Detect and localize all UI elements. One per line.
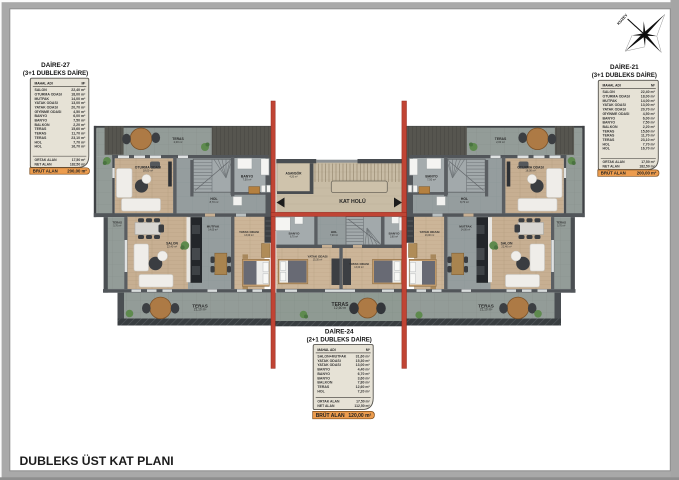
svg-text:7,20 m²: 7,20 m² (358, 389, 371, 393)
svg-text:17,50 m²: 17,50 m² (356, 399, 370, 403)
svg-text:7,20 m²: 7,20 m² (330, 234, 338, 237)
svg-text:MAHAL ADI: MAHAL ADI (317, 348, 335, 352)
svg-text:3,60 m²: 3,60 m² (390, 236, 398, 239)
svg-text:ORTAK ALAN: ORTAK ALAN (317, 399, 340, 403)
svg-text:TERAS: TERAS (35, 136, 48, 140)
svg-text:YATAK ODASI: YATAK ODASI (35, 101, 58, 105)
svg-text:182,50 m²: 182,50 m² (70, 162, 86, 166)
svg-text:GİYİNME ODASI: GİYİNME ODASI (35, 110, 62, 114)
svg-text:BANYO: BANYO (35, 119, 48, 123)
svg-text:14,00 m²: 14,00 m² (461, 229, 471, 232)
svg-text:(3+1 DUBLEKS DAİRE): (3+1 DUBLEKS DAİRE) (592, 72, 657, 79)
svg-text:2,00 m²: 2,00 m² (174, 140, 183, 144)
svg-text:13,00 m²: 13,00 m² (71, 101, 86, 105)
svg-text:TERAS: TERAS (603, 129, 616, 133)
svg-text:18,00 m²: 18,00 m² (143, 169, 153, 173)
svg-text:DUBLEKS ÜST KAT PLANI: DUBLEKS ÜST KAT PLANI (20, 453, 174, 468)
svg-text:5,70 m²: 5,70 m² (557, 225, 565, 228)
svg-text:16,70 m²: 16,70 m² (641, 147, 656, 151)
svg-text:12,60 m: 12,60 m (334, 306, 346, 310)
svg-text:5,70 m²: 5,70 m² (113, 225, 121, 228)
svg-text:OTURMA ODASI: OTURMA ODASI (603, 95, 630, 99)
svg-text:22,40 m²: 22,40 m² (71, 88, 86, 92)
svg-text:22,40 m²: 22,40 m² (167, 245, 177, 249)
svg-text:15,60 m²: 15,60 m² (641, 129, 656, 133)
svg-text:4,50 m²: 4,50 m² (73, 110, 86, 114)
svg-text:BRÜT ALAN: BRÜT ALAN (316, 412, 345, 419)
svg-text:BANYO: BANYO (603, 121, 616, 125)
svg-text:NET ALAN: NET ALAN (603, 165, 621, 169)
svg-text:16,70 m²: 16,70 m² (71, 145, 86, 149)
svg-text:TERAS: TERAS (35, 127, 48, 131)
svg-text:6,70 m²: 6,70 m² (358, 372, 371, 376)
svg-text:13,00 m²: 13,00 m² (425, 234, 435, 237)
svg-text:HOL: HOL (35, 145, 43, 149)
svg-text:4,20 m²: 4,20 m² (289, 176, 297, 179)
svg-text:ORTAK ALAN: ORTAK ALAN (35, 158, 58, 162)
svg-text:GİYİNME ODASI: GİYİNME ODASI (603, 112, 630, 116)
svg-text:TERAS: TERAS (603, 138, 616, 142)
svg-text:KAT HOLÜ: KAT HOLÜ (339, 198, 366, 205)
svg-text:(2+1 DUBLEKS DAİRE): (2+1 DUBLEKS DAİRE) (307, 336, 372, 343)
svg-text:7,50 m²: 7,50 m² (73, 119, 86, 123)
svg-text:HOL: HOL (317, 389, 325, 393)
svg-text:21,10 m²: 21,10 m² (194, 308, 207, 312)
svg-text:BANYO: BANYO (317, 372, 330, 376)
svg-text:7,80 m²: 7,80 m² (358, 381, 371, 385)
svg-text:NET ALAN: NET ALAN (35, 162, 53, 166)
svg-text:SALON: SALON (35, 88, 48, 92)
svg-text:13,00 m²: 13,00 m² (356, 363, 371, 367)
svg-text:112,50 m²: 112,50 m² (354, 404, 370, 408)
svg-text:21,10 m²: 21,10 m² (480, 308, 493, 312)
svg-text:6,70 m²: 6,70 m² (290, 236, 298, 239)
svg-text:120,00 m²: 120,00 m² (348, 413, 371, 419)
svg-text:7,50 m²: 7,50 m² (243, 178, 252, 182)
svg-text:BRÜT ALAN: BRÜT ALAN (33, 169, 58, 174)
svg-text:14,00 m²: 14,00 m² (208, 229, 218, 232)
svg-text:HOL: HOL (603, 147, 611, 151)
svg-text:7,50 m²: 7,50 m² (427, 178, 436, 182)
svg-text:7,50 m²: 7,50 m² (643, 121, 656, 125)
svg-text:182,50 m²: 182,50 m² (639, 165, 655, 169)
svg-text:BALKON: BALKON (317, 381, 332, 385)
svg-text:31,60 m²: 31,60 m² (356, 355, 371, 359)
svg-text:22,40 m²: 22,40 m² (501, 245, 511, 249)
svg-text:YATAK ODASI: YATAK ODASI (317, 363, 340, 367)
svg-text:SALON+MUTFAK: SALON+MUTFAK (317, 355, 346, 359)
svg-text:YATAK ODASI: YATAK ODASI (603, 103, 626, 107)
svg-text:ORTAK ALAN: ORTAK ALAN (603, 160, 626, 164)
svg-text:DAİRE-27: DAİRE-27 (41, 61, 70, 69)
svg-text:(3+1 DUBLEKS DAİRE): (3+1 DUBLEKS DAİRE) (23, 70, 88, 77)
svg-text:MAHAL ADI: MAHAL ADI (35, 81, 53, 85)
svg-text:BRÜT ALAN: BRÜT ALAN (601, 171, 626, 176)
svg-text:23,10 m²: 23,10 m² (71, 136, 86, 140)
svg-text:15,30 m²: 15,30 m² (313, 259, 323, 262)
svg-text:2,00 m²: 2,00 m² (496, 140, 505, 144)
svg-text:13,00 m²: 13,00 m² (244, 234, 254, 237)
svg-text:13,00 m²: 13,00 m² (641, 103, 656, 107)
svg-text:NET ALAN: NET ALAN (317, 404, 335, 408)
svg-text:18,00 m²: 18,00 m² (525, 169, 535, 173)
svg-text:4,50 m²: 4,50 m² (643, 112, 656, 116)
svg-text:15,60 m²: 15,60 m² (71, 127, 86, 131)
svg-text:MAHAL ADI: MAHAL ADI (603, 84, 621, 88)
svg-text:DAİRE-21: DAİRE-21 (610, 63, 639, 71)
svg-text:17,50 m²: 17,50 m² (641, 160, 655, 164)
svg-text:DAİRE-24: DAİRE-24 (325, 327, 354, 335)
svg-text:200,00 m²: 200,00 m² (637, 171, 657, 176)
svg-text:200,00 m²: 200,00 m² (67, 169, 87, 174)
svg-text:8,70 m²: 8,70 m² (210, 200, 219, 204)
svg-text:23,10 m²: 23,10 m² (641, 138, 656, 142)
svg-text:13,00 m²: 13,00 m² (354, 266, 364, 269)
svg-text:17,50 m²: 17,50 m² (72, 158, 86, 162)
svg-text:18,00 m²: 18,00 m² (641, 95, 656, 99)
svg-text:8,70 m²: 8,70 m² (460, 200, 469, 204)
